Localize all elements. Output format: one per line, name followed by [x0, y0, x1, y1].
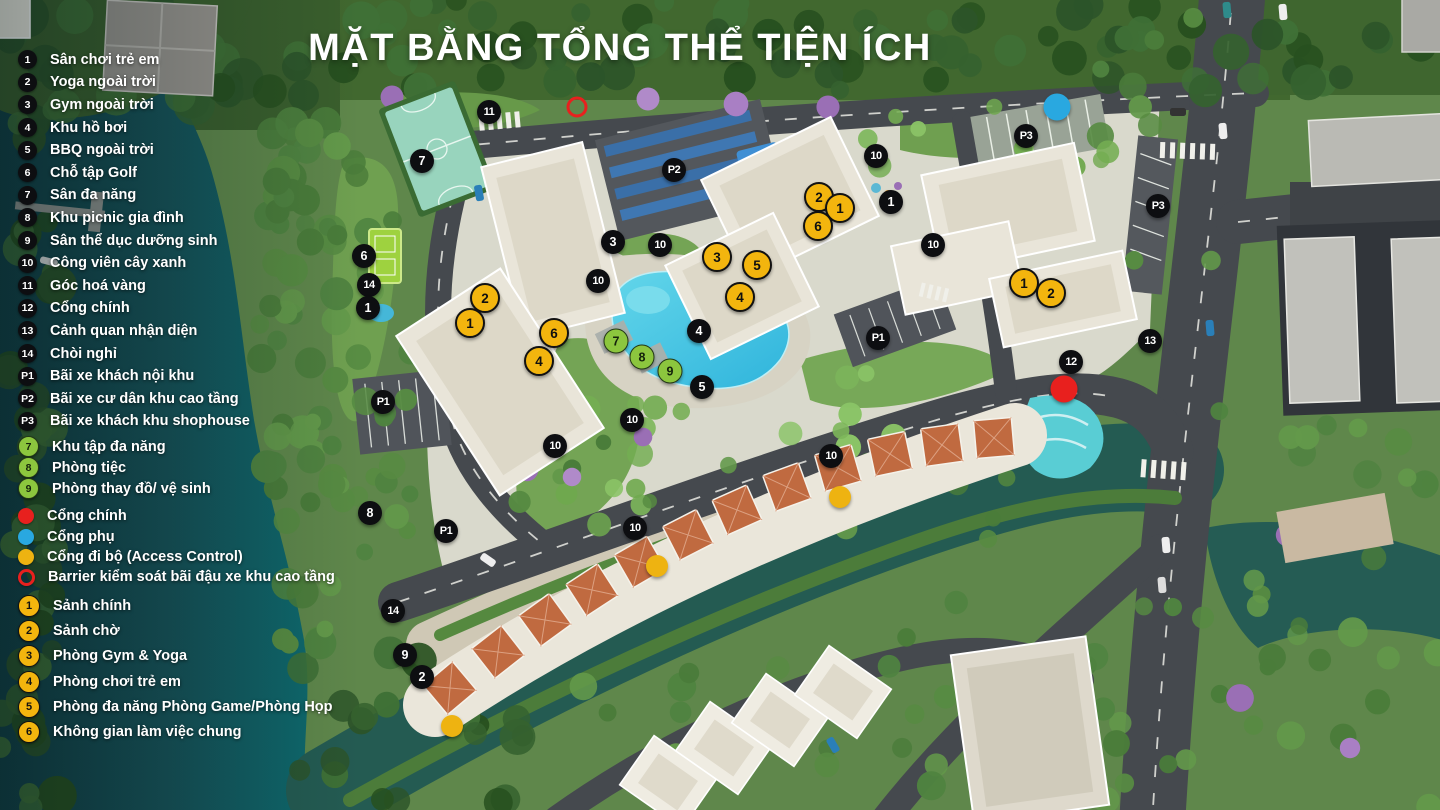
- map-marker-yellow-1: 1: [455, 308, 485, 338]
- legend-row: 5Phòng đa năng Phòng Game/Phòng Họp: [18, 694, 333, 719]
- legend-label: Cổng chính: [47, 508, 127, 524]
- legend-label: Sảnh chờ: [53, 623, 120, 639]
- map-marker-yellow-6: 6: [539, 318, 569, 348]
- map-marker-black-6: 6: [352, 244, 376, 268]
- map-marker-black-10: 10: [620, 408, 644, 432]
- legend-label: Phòng Gym & Yoga: [53, 648, 187, 664]
- legend-number-badge: 9: [18, 478, 39, 499]
- legend-label: Cảnh quan nhận diện: [50, 323, 197, 339]
- legend-ring-gate-icon: [18, 569, 35, 586]
- map-marker-black-P3: P3: [1014, 124, 1038, 148]
- legend: 1Sân chơi trẻ em2Yoga ngoài trời3Gym ngo…: [0, 0, 335, 810]
- legend-label: Sân thể dục dưỡng sinh: [50, 233, 217, 249]
- legend-number-badge: 2: [18, 620, 40, 642]
- legend-label: BBQ ngoài trời: [50, 142, 154, 158]
- legend-number-badge: 4: [18, 671, 40, 693]
- legend-label: Khu tập đa năng: [52, 439, 166, 455]
- legend-label: Phòng tiệc: [52, 460, 126, 476]
- legend-number-badge: 3: [18, 95, 37, 114]
- map-marker-black-10: 10: [543, 434, 567, 458]
- legend-row: 8Phòng tiệc: [18, 457, 211, 478]
- legend-number-badge: 9: [18, 231, 37, 250]
- map-marker-black-1: 1: [356, 296, 380, 320]
- map-marker-black-10: 10: [586, 269, 610, 293]
- legend-number-badge: 14: [18, 344, 37, 363]
- legend-number-badge: 8: [18, 208, 37, 227]
- map-marker-black-13: 13: [1138, 329, 1162, 353]
- legend-label: Bãi xe khách khu shophouse: [50, 413, 250, 429]
- legend-label: Phòng thay đồ/ vệ sinh: [52, 481, 211, 497]
- legend-row: 8Khu picnic gia đình: [18, 207, 250, 230]
- legend-label: Sân chơi trẻ em: [50, 52, 159, 68]
- map-marker-black-14: 14: [381, 599, 405, 623]
- legend-row: 6Không gian làm việc chung: [18, 719, 333, 744]
- legend-label: Góc hoá vàng: [50, 278, 146, 294]
- map-marker-green-7: 7: [604, 329, 629, 354]
- legend-number-badge: P1: [18, 367, 37, 386]
- legend-label: Phòng chơi trẻ em: [53, 674, 181, 690]
- map-marker-black-11: 11: [477, 100, 501, 124]
- legend-row: 4Khu hồ bơi: [18, 116, 250, 139]
- legend-row: 14Chòi nghỉ: [18, 342, 250, 365]
- legend-number-badge: 7: [18, 436, 39, 457]
- legend-section-clubhouse: 7Khu tập đa năng8Phòng tiệc9Phòng thay đ…: [18, 436, 211, 499]
- map-gate-red-icon: [1051, 376, 1078, 403]
- legend-row: 2Yoga ngoài trời: [18, 71, 250, 94]
- legend-number-badge: 4: [18, 118, 37, 137]
- map-marker-black-9: 9: [393, 643, 417, 667]
- map-gate-ring-icon: [567, 97, 588, 118]
- legend-number-badge: 8: [18, 457, 39, 478]
- legend-row: Cổng chính: [18, 506, 335, 526]
- map-marker-green-8: 8: [630, 345, 655, 370]
- legend-number-badge: 11: [18, 276, 37, 295]
- map-marker-black-7: 7: [410, 149, 434, 173]
- legend-number-badge: 3: [18, 645, 40, 667]
- legend-label: Bãi xe cư dân khu cao tầng: [50, 391, 239, 407]
- legend-label: Sảnh chính: [53, 598, 131, 614]
- map-marker-yellow-5: 5: [742, 250, 772, 280]
- map-marker-black-10: 10: [819, 444, 843, 468]
- legend-section-interior: 1Sảnh chính2Sảnh chờ3Phòng Gym & Yoga4Ph…: [18, 593, 333, 745]
- legend-label: Khu picnic gia đình: [50, 210, 184, 226]
- legend-number-badge: 2: [18, 73, 37, 92]
- legend-row: 1Sảnh chính: [18, 593, 333, 618]
- map-marker-black-14: 14: [357, 273, 381, 297]
- map-marker-black-3: 3: [601, 230, 625, 254]
- legend-row: 2Sảnh chờ: [18, 618, 333, 643]
- map-marker-yellow-4: 4: [524, 346, 554, 376]
- map-marker-black-10: 10: [623, 516, 647, 540]
- map-marker-yellow-6: 6: [803, 211, 833, 241]
- map-marker-green-9: 9: [658, 359, 683, 384]
- map-marker-yellow-4: 4: [725, 282, 755, 312]
- legend-label: Chỗ tập Golf: [50, 165, 137, 181]
- legend-label: Cổng chính: [50, 300, 130, 316]
- legend-row: 10Công viên cây xanh: [18, 252, 250, 275]
- legend-row: Barrier kiểm soát bãi đậu xe khu cao tần…: [18, 567, 335, 587]
- legend-label: Yoga ngoài trời: [50, 74, 156, 90]
- map-marker-black-1: 1: [879, 190, 903, 214]
- legend-row: 11Góc hoá vàng: [18, 274, 250, 297]
- legend-row: Cổng đi bộ (Access Control): [18, 547, 335, 567]
- legend-label: Barrier kiểm soát bãi đậu xe khu cao tần…: [48, 569, 335, 585]
- map-marker-yellow-1: 1: [1009, 268, 1039, 298]
- map-marker-black-10: 10: [648, 233, 672, 257]
- site-plan-canvas: MẶT BẰNG TỔNG THỂ TIỆN ÍCH 1Sân chơi trẻ…: [0, 0, 1440, 810]
- map-marker-black-P1: P1: [866, 326, 890, 350]
- legend-row: 3Gym ngoài trời: [18, 94, 250, 117]
- map-gate-amber-icon: [441, 715, 463, 737]
- map-marker-black-2: 2: [410, 665, 434, 689]
- map-marker-black-P3: P3: [1146, 194, 1170, 218]
- legend-section-amenities: 1Sân chơi trẻ em2Yoga ngoài trời3Gym ngo…: [18, 49, 250, 433]
- map-gate-amber-icon: [829, 486, 851, 508]
- legend-row: Cổng phụ: [18, 526, 335, 546]
- legend-number-badge: 13: [18, 321, 37, 340]
- legend-number-badge: P3: [18, 412, 37, 431]
- legend-row: 6Chỗ tập Golf: [18, 161, 250, 184]
- legend-number-badge: 12: [18, 299, 37, 318]
- map-marker-black-P1: P1: [434, 519, 458, 543]
- legend-row: 9Phòng thay đồ/ vệ sinh: [18, 478, 211, 499]
- map-marker-black-4: 4: [687, 319, 711, 343]
- legend-number-badge: 10: [18, 254, 37, 273]
- legend-number-badge: 7: [18, 186, 37, 205]
- map-gate-blue-icon: [1044, 94, 1071, 121]
- legend-label: Bãi xe khách nội khu: [50, 368, 194, 384]
- map-marker-black-12: 12: [1059, 350, 1083, 374]
- legend-row: P1Bãi xe khách nội khu: [18, 365, 250, 388]
- legend-row: 9Sân thể dục dưỡng sinh: [18, 229, 250, 252]
- legend-label: Công viên cây xanh: [50, 255, 186, 271]
- legend-row: 13Cảnh quan nhận diện: [18, 320, 250, 343]
- legend-row: P2Bãi xe cư dân khu cao tầng: [18, 387, 250, 410]
- legend-number-badge: 6: [18, 721, 40, 743]
- legend-section-gates: Cổng chínhCổng phụCổng đi bộ (Access Con…: [18, 506, 335, 588]
- legend-row: P3Bãi xe khách khu shophouse: [18, 410, 250, 433]
- legend-row: 12Cổng chính: [18, 297, 250, 320]
- legend-label: Gym ngoài trời: [50, 97, 154, 113]
- legend-number-badge: 6: [18, 163, 37, 182]
- legend-label: Sân đa năng: [50, 187, 136, 203]
- legend-row: 4Phòng chơi trẻ em: [18, 669, 333, 694]
- legend-row: 3Phòng Gym & Yoga: [18, 644, 333, 669]
- map-marker-black-P1: P1: [371, 390, 395, 414]
- legend-number-badge: 1: [18, 50, 37, 69]
- legend-label: Không gian làm việc chung: [53, 724, 242, 740]
- legend-number-badge: 1: [18, 595, 40, 617]
- map-marker-black-10: 10: [921, 233, 945, 257]
- map-marker-black-5: 5: [690, 375, 714, 399]
- legend-row: 1Sân chơi trẻ em: [18, 49, 250, 72]
- map-marker-black-10: 10: [864, 144, 888, 168]
- legend-row: 7Sân đa năng: [18, 184, 250, 207]
- legend-row: 7Khu tập đa năng: [18, 436, 211, 457]
- legend-label: Chòi nghỉ: [50, 346, 117, 362]
- legend-label: Cổng phụ: [47, 529, 115, 545]
- map-marker-black-P2: P2: [662, 158, 686, 182]
- legend-number-badge: 5: [18, 141, 37, 160]
- legend-label: Cổng đi bộ (Access Control): [47, 549, 243, 565]
- legend-blue-gate-icon: [18, 529, 34, 545]
- map-gate-amber-icon: [646, 555, 668, 577]
- legend-label: Phòng đa năng Phòng Game/Phòng Họp: [53, 699, 333, 715]
- legend-row: 5BBQ ngoài trời: [18, 139, 250, 162]
- map-marker-yellow-2: 2: [1036, 278, 1066, 308]
- legend-amber-gate-icon: [18, 549, 34, 565]
- legend-number-badge: P2: [18, 389, 37, 408]
- legend-label: Khu hồ bơi: [50, 120, 127, 136]
- map-marker-yellow-3: 3: [702, 242, 732, 272]
- legend-number-badge: 5: [18, 696, 40, 718]
- legend-red-gate-icon: [18, 508, 34, 524]
- map-marker-black-8: 8: [358, 501, 382, 525]
